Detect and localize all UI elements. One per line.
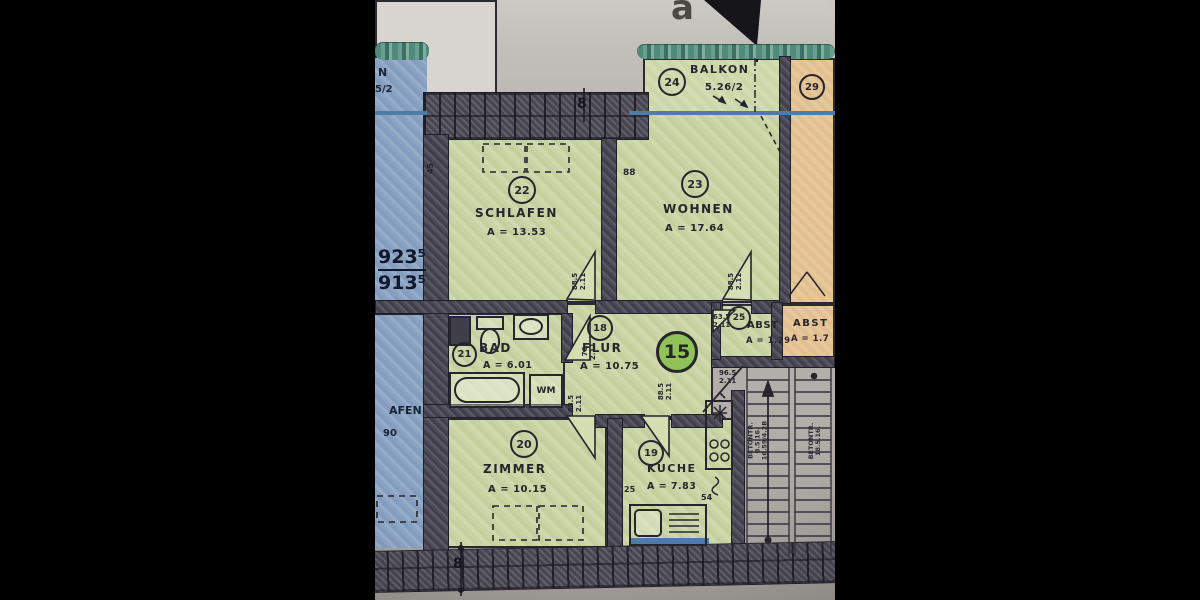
neighbor-left-dim-lower: 913⁵ (378, 272, 426, 294)
door-label-bad: 76 2.11 (582, 343, 597, 360)
bathtub-inner (454, 377, 520, 403)
neighbor-left-room-fragment: AFEN (389, 404, 422, 417)
room-name-kueche: KUCHE (647, 462, 697, 475)
door-height: 2.11 (713, 321, 730, 329)
door-height: 2.11 (665, 383, 673, 400)
neighbor-abst-area: A = 1.7 (791, 334, 829, 344)
room-area-balkon: 5.26/2 (705, 82, 743, 93)
room-name-abst: ABST (747, 320, 778, 331)
stair-text: 16.59/4.2B (761, 421, 769, 460)
room-name-bad: BAD (479, 341, 512, 355)
room-number-zimmer: 20 (510, 430, 538, 458)
dim-25: 25 (624, 485, 635, 494)
floorplan-screenshot: a (0, 0, 1200, 600)
door-height: 2.11 (575, 395, 583, 412)
neighbor-room-number-29: 29 (799, 74, 825, 100)
balcony-arrows (713, 96, 747, 107)
apartment-number-badge: 15 (656, 331, 698, 373)
neighbor-left-area-fragment: 90 (383, 428, 397, 439)
room-area-bad: A = 6.01 (483, 360, 532, 371)
room-name-zimmer: ZIMMER (483, 462, 547, 476)
door-height: 2.11 (735, 273, 743, 290)
kitchen-appliance-box (705, 400, 733, 470)
room-area-kueche: A = 7.83 (647, 481, 696, 492)
door-label-abst: 63.5 2.11 (713, 314, 730, 329)
room-number-bad: 21 (452, 342, 477, 367)
washing-machine: WM (529, 374, 563, 408)
door-height: 2.11 (589, 343, 597, 360)
section-marker-top: 8 (577, 96, 587, 112)
neighbor-left-dim-upper: 923⁵ (378, 246, 426, 271)
room-number-flur: 18 (587, 315, 613, 341)
letterbox-right (835, 0, 1200, 600)
room-name-wohnen: WOHNEN (663, 202, 734, 216)
room-area-abst: A = 1.29 (746, 336, 791, 346)
room-name-schlafen: SCHLAFEN (475, 206, 558, 220)
door-label-kueche: 88.5 2.11 (658, 383, 673, 400)
section-marker-bottom: 8 (453, 556, 463, 572)
washbasin-bowl (519, 318, 543, 335)
room-number-schlafen: 22 (508, 176, 536, 204)
door-label-wohnen: 88.5 2.11 (728, 273, 743, 290)
neighbor-abst-name: ABST (793, 318, 828, 329)
north-glyph: a (671, 0, 694, 28)
room-area-schlafen: A = 13.53 (487, 227, 546, 238)
room-number-wohnen: 23 (681, 170, 709, 198)
kitchen-sink-bowl (634, 509, 662, 537)
neighbor-left-balkon-text2: 5/2 (375, 84, 393, 95)
door-height: 2.11 (719, 377, 736, 385)
section-marker-lines (459, 88, 584, 596)
stair-text: 18.5.16. (814, 426, 822, 456)
room-name-balkon: BALKON (690, 63, 750, 76)
room-area-flur: A = 10.75 (580, 361, 639, 372)
stair-label-right: BETONTR. 18.5.16. (808, 413, 822, 469)
room-area-zimmer: A = 10.15 (488, 484, 547, 495)
dim-45: 45 (426, 163, 435, 174)
floor-plan-photo: a (375, 0, 835, 600)
dim-54: 54 (701, 493, 712, 502)
door-label-schlafen: 88.5 2.11 (572, 273, 587, 290)
stair-label-left: BETONTR. B.5.16. 16.59/4.2B (748, 410, 769, 472)
door-label-entrance: 96.5 2.11 (719, 370, 736, 385)
dim-88: 88 (623, 168, 636, 178)
door-label-zimmer: 88.5 2.11 (568, 395, 583, 412)
washing-machine-label: WM (537, 386, 556, 396)
letterbox-left (0, 0, 375, 600)
neighbor-left-balkon-text1: N (378, 66, 387, 79)
door-height: 2.11 (579, 273, 587, 290)
room-area-wohnen: A = 17.64 (665, 223, 724, 234)
room-number-balkon: 24 (658, 68, 686, 96)
